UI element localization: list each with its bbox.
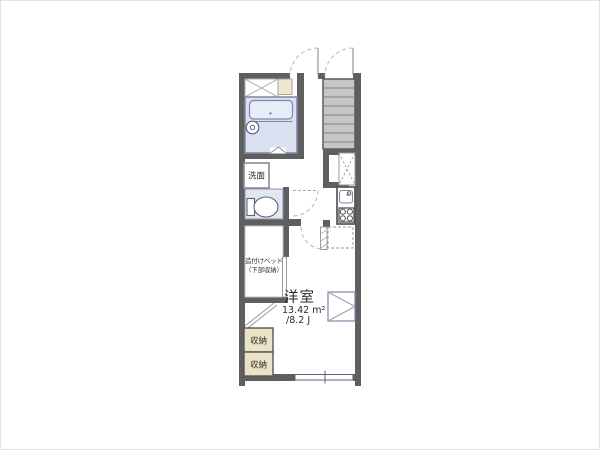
storage-label-1: 収納 (250, 336, 267, 347)
wall-bottom-right (353, 374, 361, 381)
bed-label-line2: （下部収納） (245, 265, 283, 274)
entry-door-left (290, 48, 318, 76)
built-in-bed: 造付けベッド （下部収納） (245, 226, 283, 297)
refrigerator-space (328, 227, 353, 248)
bottom-window (295, 371, 353, 384)
kitchen-counter (337, 187, 355, 224)
room-door (301, 227, 327, 250)
floor-plan: 洗面 (0, 0, 600, 450)
bath-door (270, 147, 286, 154)
wall-top-pier (318, 73, 325, 79)
staircase (323, 79, 355, 149)
room-name: 洋室 (284, 289, 315, 306)
room-label: 洋室 13.42 m² /8.2 J (282, 289, 325, 326)
wall-bath-right (297, 73, 304, 159)
washstand-label: 洗面 (248, 171, 266, 182)
bathtub (250, 101, 293, 122)
wall-bed-bottom (239, 297, 288, 303)
closet-door-lines (245, 303, 277, 328)
wall-top-left (239, 73, 290, 79)
wall-toilet-bottom (239, 219, 301, 226)
kitchen-stove (339, 208, 354, 222)
kitchen-sink (340, 191, 353, 204)
wall-roomdoor-pier (323, 220, 330, 227)
wall-top-right (353, 73, 361, 79)
under-stair-storage (339, 153, 355, 185)
storage-box-2: 収納 (244, 352, 273, 376)
storage-label-2: 収納 (250, 360, 267, 371)
washroom-door (293, 191, 319, 217)
wall-bed-right (283, 226, 289, 257)
washstand-box: 洗面 (244, 163, 269, 188)
room-area-tatami: /8.2 J (286, 315, 310, 326)
wall-right (355, 73, 361, 386)
bath-faucet-icon (246, 121, 259, 134)
washing-machine-space (245, 79, 278, 97)
bathroom (245, 97, 297, 154)
window-box (328, 292, 355, 321)
wall-bath-bottom (239, 153, 304, 159)
bed-label-line1: 造付けベッド (245, 256, 283, 265)
toilet (247, 197, 278, 217)
storage-box-1: 収納 (244, 328, 273, 352)
toilet-room (245, 189, 283, 219)
entry-door-right (325, 48, 353, 76)
shelf (278, 79, 292, 95)
